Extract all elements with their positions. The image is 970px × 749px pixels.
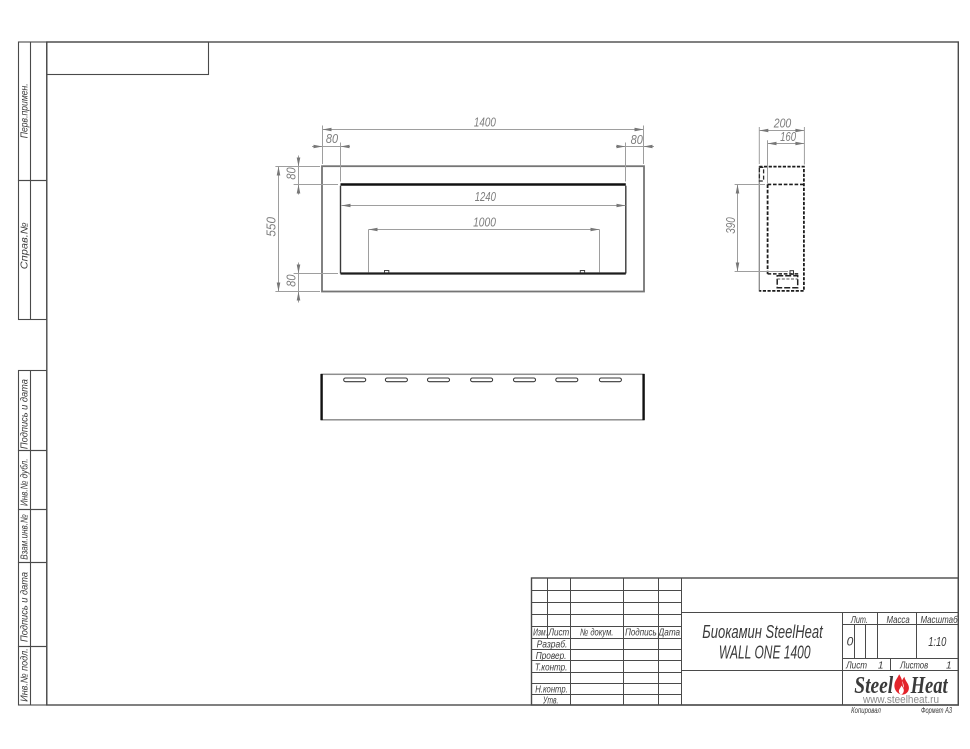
svg-text:Разраб.: Разраб. — [537, 638, 568, 650]
svg-text:1000: 1000 — [473, 214, 496, 229]
svg-text:Листов: Листов — [899, 661, 928, 672]
svg-text:160: 160 — [780, 129, 797, 144]
svg-text:Лист: Лист — [548, 628, 570, 639]
svg-text:1: 1 — [878, 661, 884, 672]
svg-text:Утв.: Утв. — [542, 696, 558, 707]
svg-text:Взам.инв.№: Взам.инв.№ — [20, 514, 31, 560]
svg-text:1240: 1240 — [475, 189, 497, 204]
svg-text:Лит.: Лит. — [850, 615, 868, 626]
svg-text:Подпись: Подпись — [625, 628, 657, 639]
svg-text:Масса: Масса — [887, 615, 911, 626]
svg-text:Инв.№ подл.: Инв.№ подл. — [20, 648, 31, 702]
svg-text:0: 0 — [847, 635, 854, 649]
svg-text:80: 80 — [283, 167, 298, 180]
svg-text:1400: 1400 — [474, 114, 497, 129]
svg-text:www.steelheat.ru: www.steelheat.ru — [862, 694, 939, 706]
svg-text:Копировал: Копировал — [851, 706, 881, 715]
svg-text:Формат А3: Формат А3 — [921, 706, 952, 715]
svg-text:80: 80 — [283, 274, 298, 287]
svg-text:Перв.примен.: Перв.примен. — [20, 83, 31, 138]
svg-text:Масштаб: Масштаб — [920, 614, 957, 626]
svg-text:WALL ONE 1400: WALL ONE 1400 — [719, 643, 811, 663]
svg-text:Справ.№: Справ.№ — [20, 222, 31, 269]
svg-text:Дата: Дата — [658, 628, 681, 639]
svg-text:Н.контр.: Н.контр. — [535, 685, 567, 696]
svg-text:80: 80 — [326, 131, 339, 146]
svg-text:№ докум.: № докум. — [580, 628, 613, 639]
svg-text:Изм.: Изм. — [533, 628, 547, 639]
svg-text:Подпись и дата: Подпись и дата — [20, 572, 31, 642]
svg-text:390: 390 — [723, 217, 738, 234]
svg-text:Провер.: Провер. — [536, 651, 567, 662]
svg-text:Биокамин SteelHeat: Биокамин SteelHeat — [702, 622, 823, 642]
svg-text:1: 1 — [946, 661, 952, 672]
svg-text:Инв.№ дубл.: Инв.№ дубл. — [19, 459, 31, 507]
svg-text:1:10: 1:10 — [928, 634, 947, 649]
svg-text:Подпись и дата: Подпись и дата — [20, 379, 31, 449]
svg-text:550: 550 — [264, 216, 279, 236]
svg-text:80: 80 — [631, 132, 644, 147]
svg-text:Лист: Лист — [845, 661, 867, 672]
svg-text:Т.контр.: Т.контр. — [535, 662, 568, 673]
